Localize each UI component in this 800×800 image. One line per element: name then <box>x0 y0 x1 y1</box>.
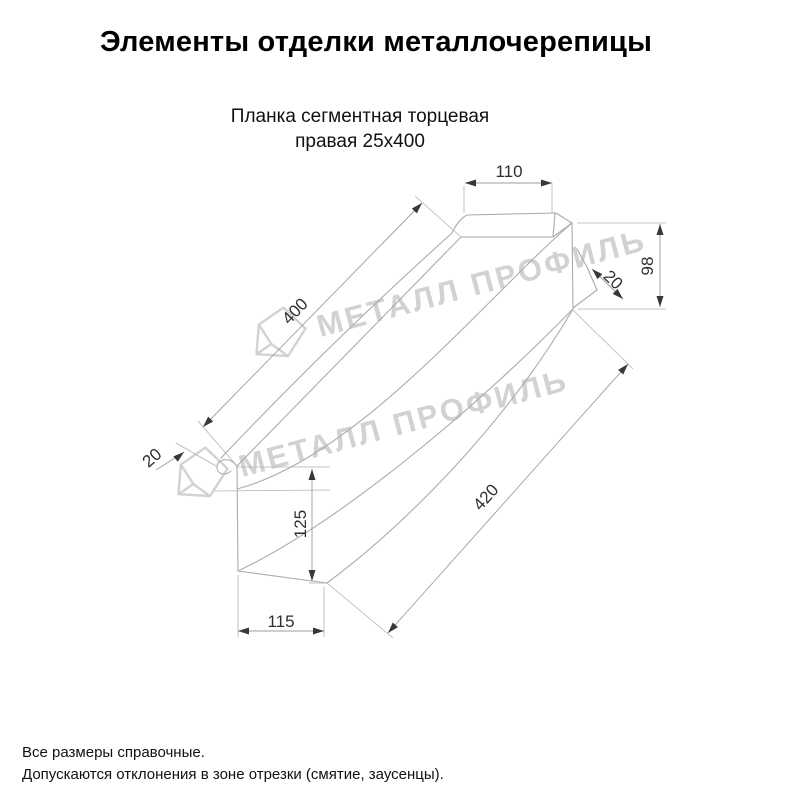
dimension-label-bottom-flange-width: 115 <box>267 612 294 631</box>
technical-drawing: МЕТАЛЛ ПРОФИЛЬ МЕТАЛЛ ПРОФИЛЬ <box>0 0 800 800</box>
dimension-label-bottom-edge-length: 420 <box>469 480 502 514</box>
watermark-text: МЕТАЛЛ ПРОФИЛЬ <box>313 222 650 344</box>
dimension-label-left-hem-width: 20 <box>139 444 166 471</box>
dimension-label-right-end-height: 98 <box>638 257 657 276</box>
watermark-lower: МЕТАЛЛ ПРОФИЛЬ <box>169 352 573 503</box>
right-end-edge <box>572 223 573 309</box>
footer-note-line2: Допускаются отклонения в зоне отрезки (с… <box>22 764 444 786</box>
dimension-labels: 110 98 400 420 125 115 20 20 <box>139 162 657 631</box>
dimension-label-top-flange-width: 110 <box>495 162 522 181</box>
flange-segment-edge <box>553 213 555 237</box>
left-end-vertical-edge <box>237 466 238 571</box>
dimension-label-top-edge-length: 400 <box>278 294 311 328</box>
dimension-label-left-end-height: 125 <box>291 510 310 538</box>
dimension-label-right-hem-width: 20 <box>600 267 627 294</box>
watermark-text: МЕТАЛЛ ПРОФИЛЬ <box>235 362 572 484</box>
footer-note-line1: Все размеры справочные. <box>22 742 444 764</box>
footer-notes: Все размеры справочные. Допускаются откл… <box>22 742 444 786</box>
